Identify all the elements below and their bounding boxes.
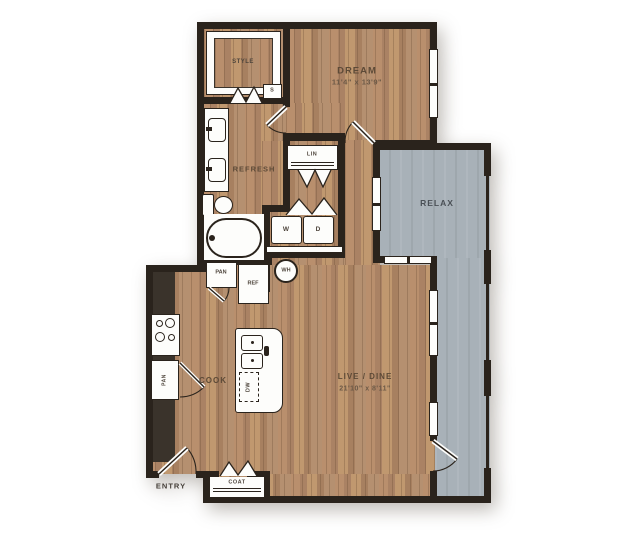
bedroom-label: DREAM — [337, 66, 377, 76]
pantry-label: PAN — [215, 270, 226, 276]
water-heater-label: WH — [281, 268, 290, 274]
linen-label: LIN — [307, 152, 317, 158]
bathroom-door — [267, 107, 286, 133]
floor-plan: DREAM 11'4" x 13'9" STYLE S REFRESH LIN … — [0, 0, 629, 535]
living-label: LIVE / DINE — [338, 373, 393, 381]
closet-label: STYLE — [232, 59, 254, 65]
kitchen-pantry-label: PAN — [163, 374, 168, 386]
floor-plan-canvas: DREAM 11'4" x 13'9" STYLE S REFRESH LIN … — [0, 0, 629, 535]
closet-bifold-door — [230, 87, 262, 103]
entry-door — [159, 448, 196, 474]
balcony-label: RELAX — [420, 199, 454, 208]
coat-label: COAT — [228, 480, 245, 486]
balcony-door — [433, 441, 457, 471]
laundry-bifold-door — [286, 198, 337, 215]
kitchen-label: COOK — [199, 377, 227, 385]
bath-label: REFRESH — [233, 165, 276, 173]
washer-label: W — [283, 227, 289, 234]
fridge-label: REF — [248, 281, 259, 287]
dishwasher-label: DW — [246, 382, 252, 392]
dryer-label: D — [316, 227, 321, 234]
bedroom-door — [345, 122, 374, 143]
shelf-label: S — [270, 88, 274, 94]
pantry-door — [209, 288, 229, 301]
coat-bifold-door — [220, 461, 257, 476]
entry-label: ENTRY — [156, 482, 186, 490]
bedroom-dims: 11'4" x 13'9" — [332, 78, 382, 86]
door-symbols — [0, 0, 629, 535]
linen-bifold-door — [298, 170, 331, 187]
living-dims: 21'10" x 8'11" — [339, 386, 391, 393]
